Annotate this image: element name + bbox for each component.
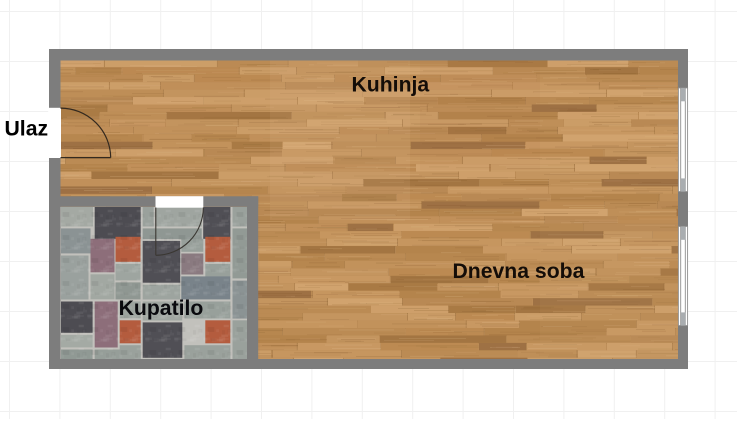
svg-text:Dnevna soba: Dnevna soba xyxy=(453,260,585,283)
svg-text:Kuhinja: Kuhinja xyxy=(352,74,430,97)
svg-text:Kupatilo: Kupatilo xyxy=(119,297,204,320)
svg-text:Ulaz: Ulaz xyxy=(5,118,49,141)
